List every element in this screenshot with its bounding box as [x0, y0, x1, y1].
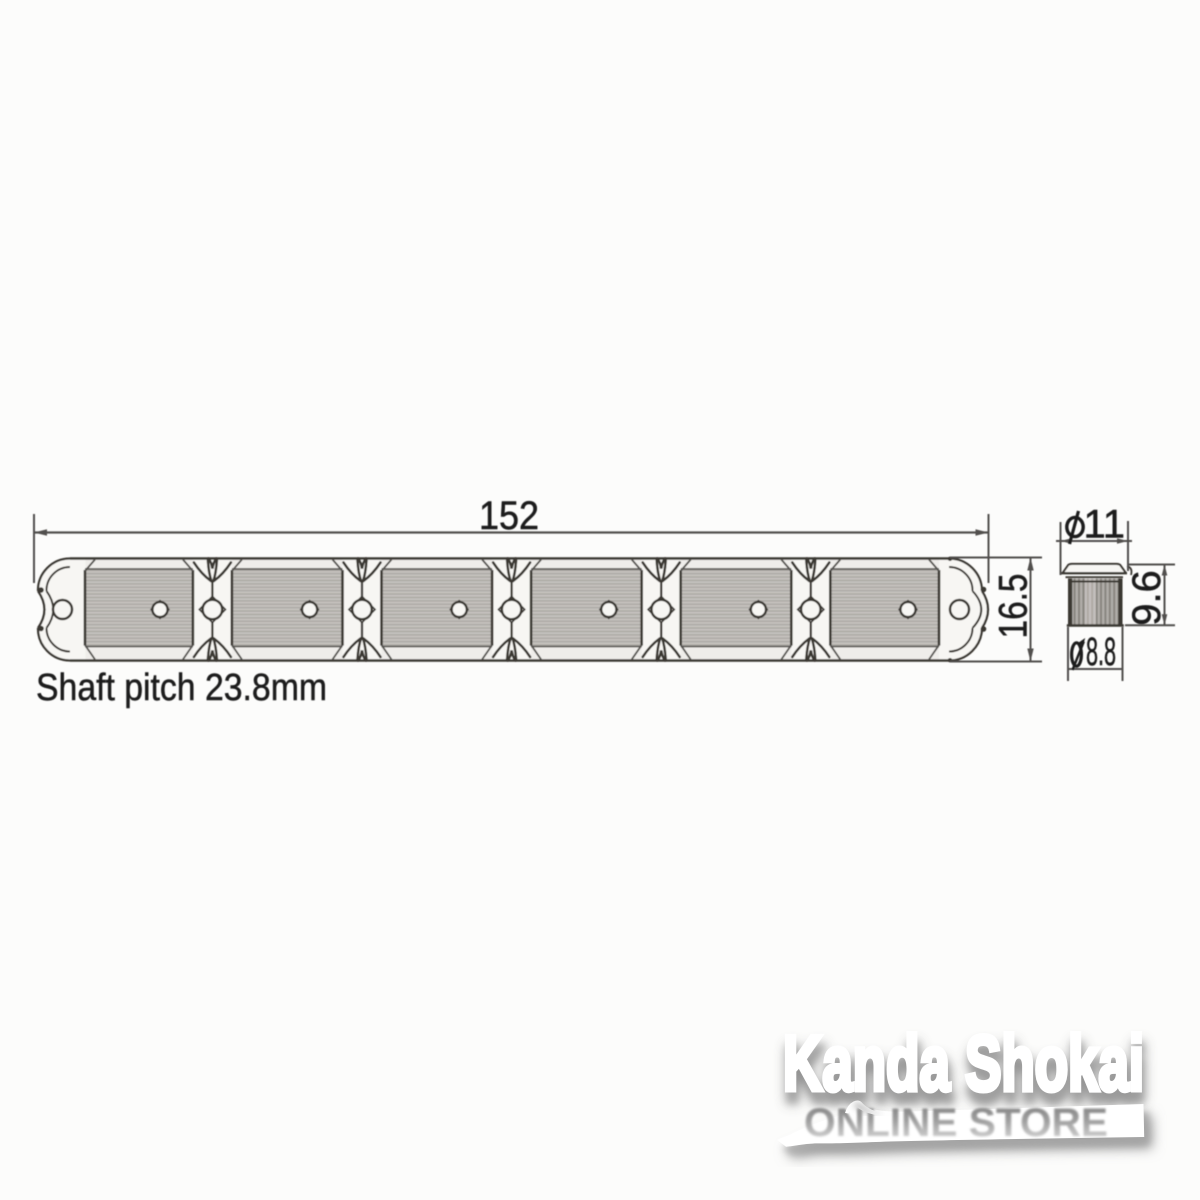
svg-text:8.8: 8.8: [1086, 630, 1116, 674]
svg-text:Shaft pitch 23.8mm: Shaft pitch 23.8mm: [36, 667, 327, 709]
svg-text:16.5: 16.5: [992, 574, 1036, 639]
svg-text:9.6: 9.6: [1125, 570, 1169, 626]
svg-text:11: 11: [1084, 503, 1126, 547]
svg-text:152: 152: [479, 494, 539, 538]
svg-text:Kanda Shokai: Kanda Shokai: [783, 1020, 1144, 1107]
